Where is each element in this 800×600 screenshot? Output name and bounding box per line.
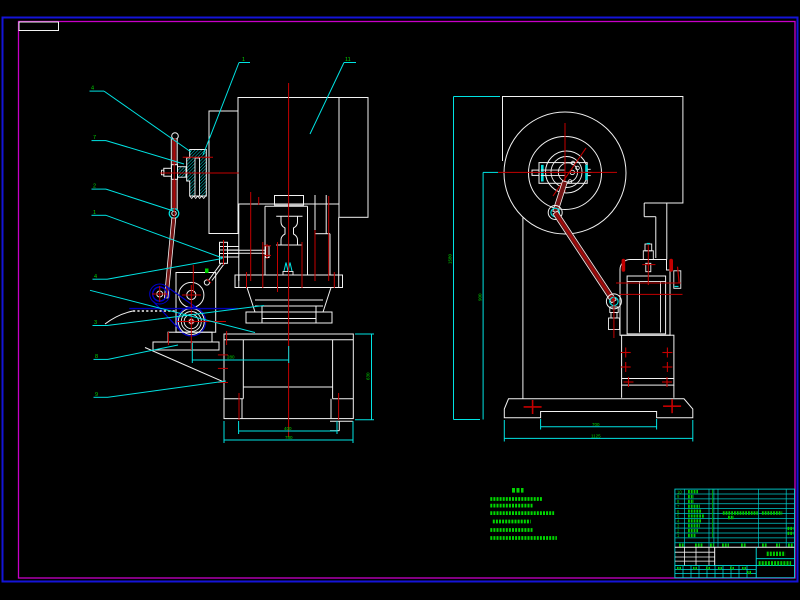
svg-text:700: 700 bbox=[592, 422, 600, 427]
svg-text:780: 780 bbox=[285, 435, 293, 440]
svg-text:280: 280 bbox=[227, 355, 235, 360]
svg-text:900: 900 bbox=[477, 293, 482, 301]
svg-text:630: 630 bbox=[366, 372, 371, 380]
svg-text:1125: 1125 bbox=[591, 434, 601, 439]
svg-text:1580: 1580 bbox=[448, 253, 453, 264]
svg-text:400: 400 bbox=[284, 426, 292, 431]
